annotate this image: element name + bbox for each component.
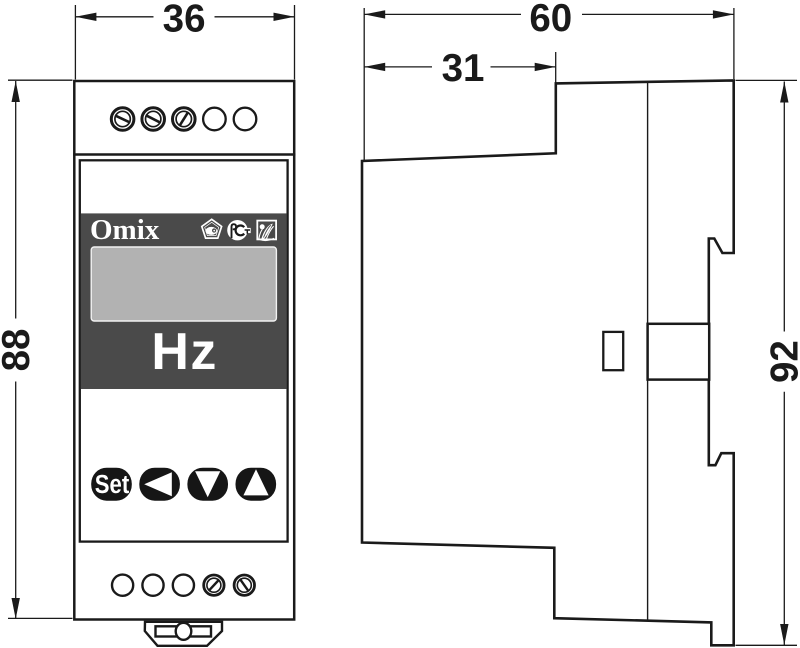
svg-text:Omix: Omix	[90, 214, 160, 246]
svg-text:88: 88	[0, 329, 38, 372]
svg-text:Set: Set	[95, 471, 129, 500]
svg-text:92: 92	[764, 340, 800, 383]
svg-text:36: 36	[163, 0, 206, 41]
svg-text:60: 60	[529, 0, 572, 40]
svg-text:31: 31	[442, 47, 485, 90]
svg-text:Hz: Hz	[151, 323, 218, 381]
